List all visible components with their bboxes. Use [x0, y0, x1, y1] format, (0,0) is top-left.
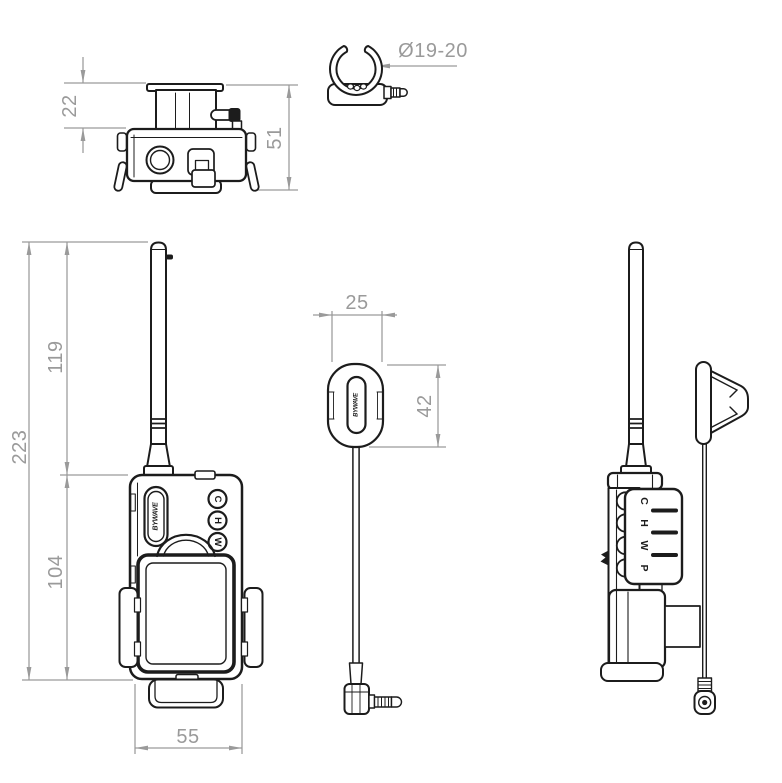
- top-view-body: [127, 129, 246, 181]
- knob-cylinder: [156, 90, 216, 131]
- pole-clip-view: [328, 46, 407, 105]
- body-top-cap: [608, 473, 662, 489]
- button-c-label: C: [212, 496, 223, 503]
- dim-label-22: 22: [59, 94, 81, 117]
- dim-front-119: 119: [45, 242, 128, 475]
- antenna-taper: [147, 444, 170, 467]
- jack-plug-tip: [392, 697, 402, 707]
- pole-clip-side: [711, 371, 748, 433]
- top-slot: [195, 471, 215, 479]
- views-layer: BYWAVE C H W: [114, 46, 748, 714]
- dim-label-104: 104: [45, 555, 67, 590]
- front-view: BYWAVE C H W: [120, 243, 263, 708]
- bottom-cap: [601, 663, 663, 681]
- corner-leg: [114, 161, 128, 191]
- strain-relief: [350, 663, 363, 684]
- button-w-label: W: [212, 538, 223, 547]
- pole-clip-bar: [696, 362, 711, 444]
- top-view: [114, 84, 260, 193]
- brand-logo: BYWAVE: [354, 392, 360, 417]
- dim-label-25: 25: [345, 292, 368, 314]
- dim-label-223: 223: [9, 430, 31, 465]
- jack-shaft: [391, 88, 400, 97]
- jack-tip: [400, 89, 407, 96]
- antenna-elbow: [229, 108, 241, 122]
- dim-label-diameter: Ø19-20: [398, 40, 468, 62]
- belt-hook: [601, 551, 609, 566]
- dim-remote-25: 25: [313, 292, 397, 362]
- corner-clip: [247, 133, 256, 151]
- antenna: [629, 243, 643, 445]
- jack-collar: [384, 87, 391, 99]
- panel-label-p: P: [638, 564, 650, 571]
- dim-clip-diameter: Ø19-20: [377, 40, 468, 68]
- cradle-arm: [665, 606, 700, 647]
- corner-leg: [246, 161, 260, 191]
- angle-jack-body: [345, 684, 370, 714]
- cradle-side: [609, 590, 665, 668]
- dim-label-55: 55: [176, 726, 199, 748]
- bottom-tab: [149, 680, 223, 708]
- dim-label-119: 119: [45, 340, 67, 373]
- antenna-stub: [166, 255, 173, 260]
- button-panel: [625, 489, 682, 584]
- brand-logo: BYWAVE: [153, 502, 160, 531]
- cradle: [138, 555, 234, 672]
- remote-detail-view: BYWAVE: [328, 364, 402, 714]
- panel-label-c: C: [638, 497, 650, 505]
- side-view: C H W P: [601, 243, 749, 715]
- button-h-label: H: [212, 517, 223, 524]
- corner-clip: [118, 133, 127, 151]
- panel-label-w: W: [638, 541, 650, 551]
- technical-drawing-canvas: 22 51 Ø19-20 223 119: [0, 0, 782, 783]
- latch-tab: [192, 170, 215, 187]
- antenna-taper: [626, 444, 646, 467]
- dim-label-42: 42: [414, 394, 436, 417]
- dim-front-104: 104: [45, 475, 69, 680]
- antenna: [151, 243, 166, 445]
- panel-label-h: H: [638, 519, 650, 527]
- dim-label-51: 51: [264, 126, 286, 149]
